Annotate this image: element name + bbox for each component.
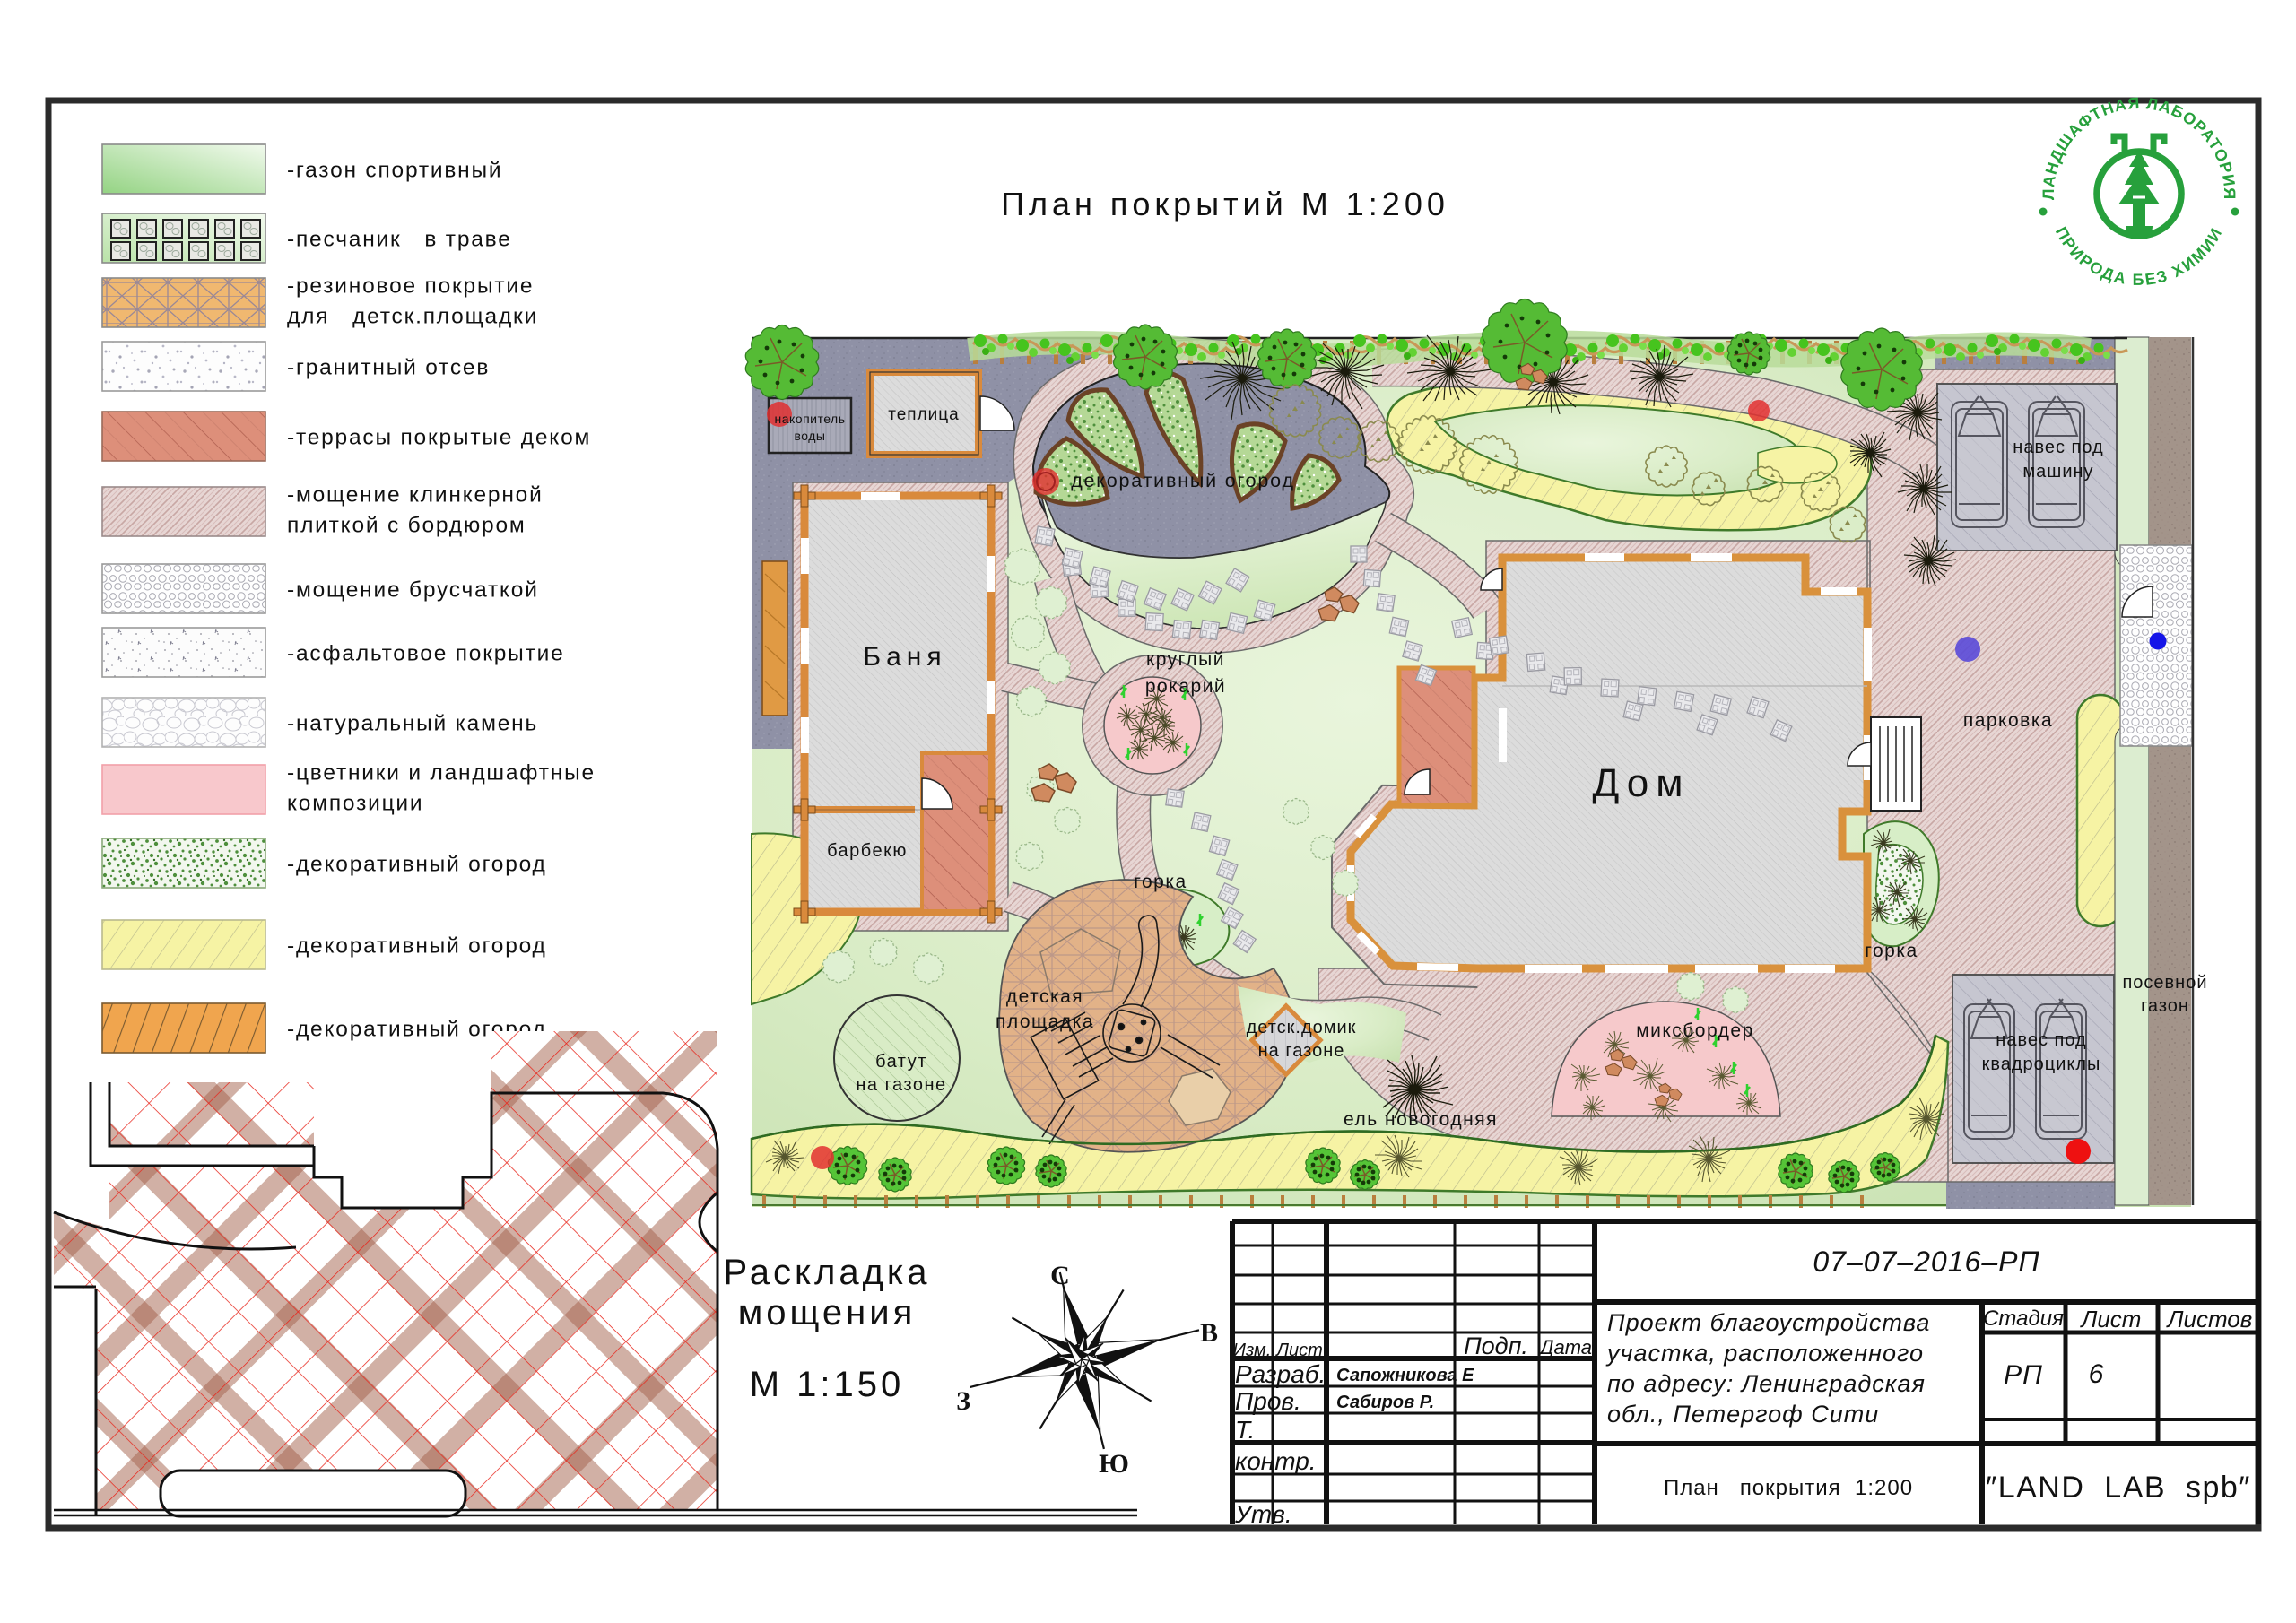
svg-text:батут: батут — [875, 1052, 927, 1072]
svg-text:План покрытий М 1:200: План покрытий М 1:200 — [1001, 186, 1449, 222]
svg-text:Пров.: Пров. — [1235, 1387, 1301, 1415]
svg-text:Стадия: Стадия — [1983, 1306, 2064, 1331]
svg-text:07–07–2016–РП: 07–07–2016–РП — [1813, 1245, 2039, 1278]
svg-text:Разраб.: Разраб. — [1235, 1360, 1326, 1388]
svg-text:Проект благоустройства: Проект благоустройства — [1607, 1309, 1930, 1336]
svg-text:-резиновое покрытие: -резиновое покрытие — [287, 274, 534, 299]
svg-text:квадроциклы: квадроциклы — [1982, 1055, 2101, 1074]
svg-text:-песчаник в траве: -песчаник в траве — [287, 228, 512, 252]
svg-text:обл., Петергоф Сити: обл., Петергоф Сити — [1607, 1401, 1879, 1428]
svg-text:миксбордер: миксбордер — [1636, 1020, 1754, 1041]
svg-text:-асфальтовое покрытие: -асфальтовое покрытие — [287, 642, 565, 666]
svg-text:ель новогодняя: ель новогодняя — [1344, 1109, 1498, 1130]
svg-text:З: З — [956, 1386, 970, 1416]
svg-text:-мощение клинкерной: -мощение клинкерной — [287, 483, 544, 508]
svg-text:Дата: Дата — [1537, 1336, 1592, 1358]
svg-text:накопитель: накопитель — [774, 412, 845, 426]
svg-text:мощения: мощения — [738, 1293, 917, 1332]
svg-text:-газон спортивный: -газон спортивный — [287, 159, 502, 183]
svg-text:Лист: Лист — [1274, 1341, 1323, 1360]
svg-text:РП: РП — [2004, 1360, 2043, 1390]
svg-text:-гранитный отсев: -гранитный отсев — [287, 356, 490, 380]
svg-text:Т.: Т. — [1235, 1416, 1255, 1444]
svg-text:Листов: Листов — [2166, 1306, 2253, 1332]
svg-text:-мощение брусчаткой: -мощение брусчаткой — [287, 578, 539, 603]
svg-text:План покрытия 1:200: План покрытия 1:200 — [1664, 1476, 1913, 1500]
svg-text:декоративный огород: декоративный огород — [1071, 470, 1295, 491]
svg-text:-натуральный камень: -натуральный камень — [287, 712, 538, 736]
svg-text:участка, расположенного: участка, расположенного — [1605, 1340, 1924, 1367]
svg-text:Баня: Баня — [863, 642, 946, 672]
svg-text:рокарий: рокарий — [1145, 676, 1226, 697]
svg-text:детск.домик: детск.домик — [1247, 1018, 1357, 1037]
svg-text:-декоративный огород: -декоративный огород — [287, 934, 547, 959]
svg-text:детская: детская — [1006, 986, 1083, 1007]
svg-text:В: В — [1200, 1318, 1218, 1348]
svg-text:Раскладка: Раскладка — [723, 1253, 930, 1292]
svg-text:посевной: посевной — [2122, 973, 2207, 993]
svg-text:на газоне: на газоне — [1258, 1041, 1345, 1061]
svg-text:навес под: навес под — [2013, 438, 2103, 457]
svg-text:Сабиров Р.: Сабиров Р. — [1336, 1393, 1434, 1412]
svg-text:горка: горка — [1865, 941, 1918, 961]
svg-text:круглый: круглый — [1146, 649, 1225, 670]
svg-text:для детск.площадки: для детск.площадки — [287, 305, 538, 329]
svg-text:″LAND LAB spb″: ″LAND LAB spb″ — [1986, 1471, 2251, 1505]
svg-text:плиткой с бордюром: плиткой с бордюром — [287, 514, 526, 538]
svg-text:на газоне: на газоне — [856, 1075, 946, 1095]
svg-text:навес под: навес под — [1996, 1030, 2086, 1050]
svg-text:-террасы покрытые деком: -террасы покрытые деком — [287, 426, 591, 450]
svg-text:площадка: площадка — [996, 1011, 1094, 1032]
svg-text:по адресу: Ленинградская: по адресу: Ленинградская — [1607, 1370, 1926, 1397]
svg-text:композиции: композиции — [287, 792, 423, 816]
svg-text:воды: воды — [795, 429, 826, 443]
svg-text:теплица: теплица — [888, 405, 960, 424]
svg-text:Лист: Лист — [2080, 1306, 2142, 1332]
svg-text:С: С — [1050, 1261, 1070, 1290]
svg-text:Дом: Дом — [1592, 761, 1690, 805]
svg-text:М 1:150: М 1:150 — [750, 1365, 905, 1404]
svg-text:парковка: парковка — [1963, 710, 2053, 731]
svg-text:Сапожникова Е: Сапожникова Е — [1336, 1366, 1474, 1385]
svg-text:-декоративный огород: -декоративный огород — [287, 853, 547, 877]
svg-text:контр.: контр. — [1235, 1447, 1317, 1475]
svg-text:горка: горка — [1134, 872, 1187, 892]
svg-text:газон: газон — [2141, 996, 2189, 1016]
svg-text:6: 6 — [2089, 1359, 2104, 1389]
svg-text:Утв.: Утв. — [1234, 1500, 1292, 1528]
svg-text:Ю: Ю — [1099, 1449, 1129, 1479]
svg-text:Изм.: Изм. — [1233, 1341, 1272, 1360]
svg-text:барбекю: барбекю — [827, 841, 908, 861]
svg-text:машину: машину — [2022, 462, 2093, 482]
svg-text:Подп.: Подп. — [1464, 1332, 1528, 1359]
svg-text:-цветники и ландшафтные: -цветники и ландшафтные — [287, 761, 596, 785]
